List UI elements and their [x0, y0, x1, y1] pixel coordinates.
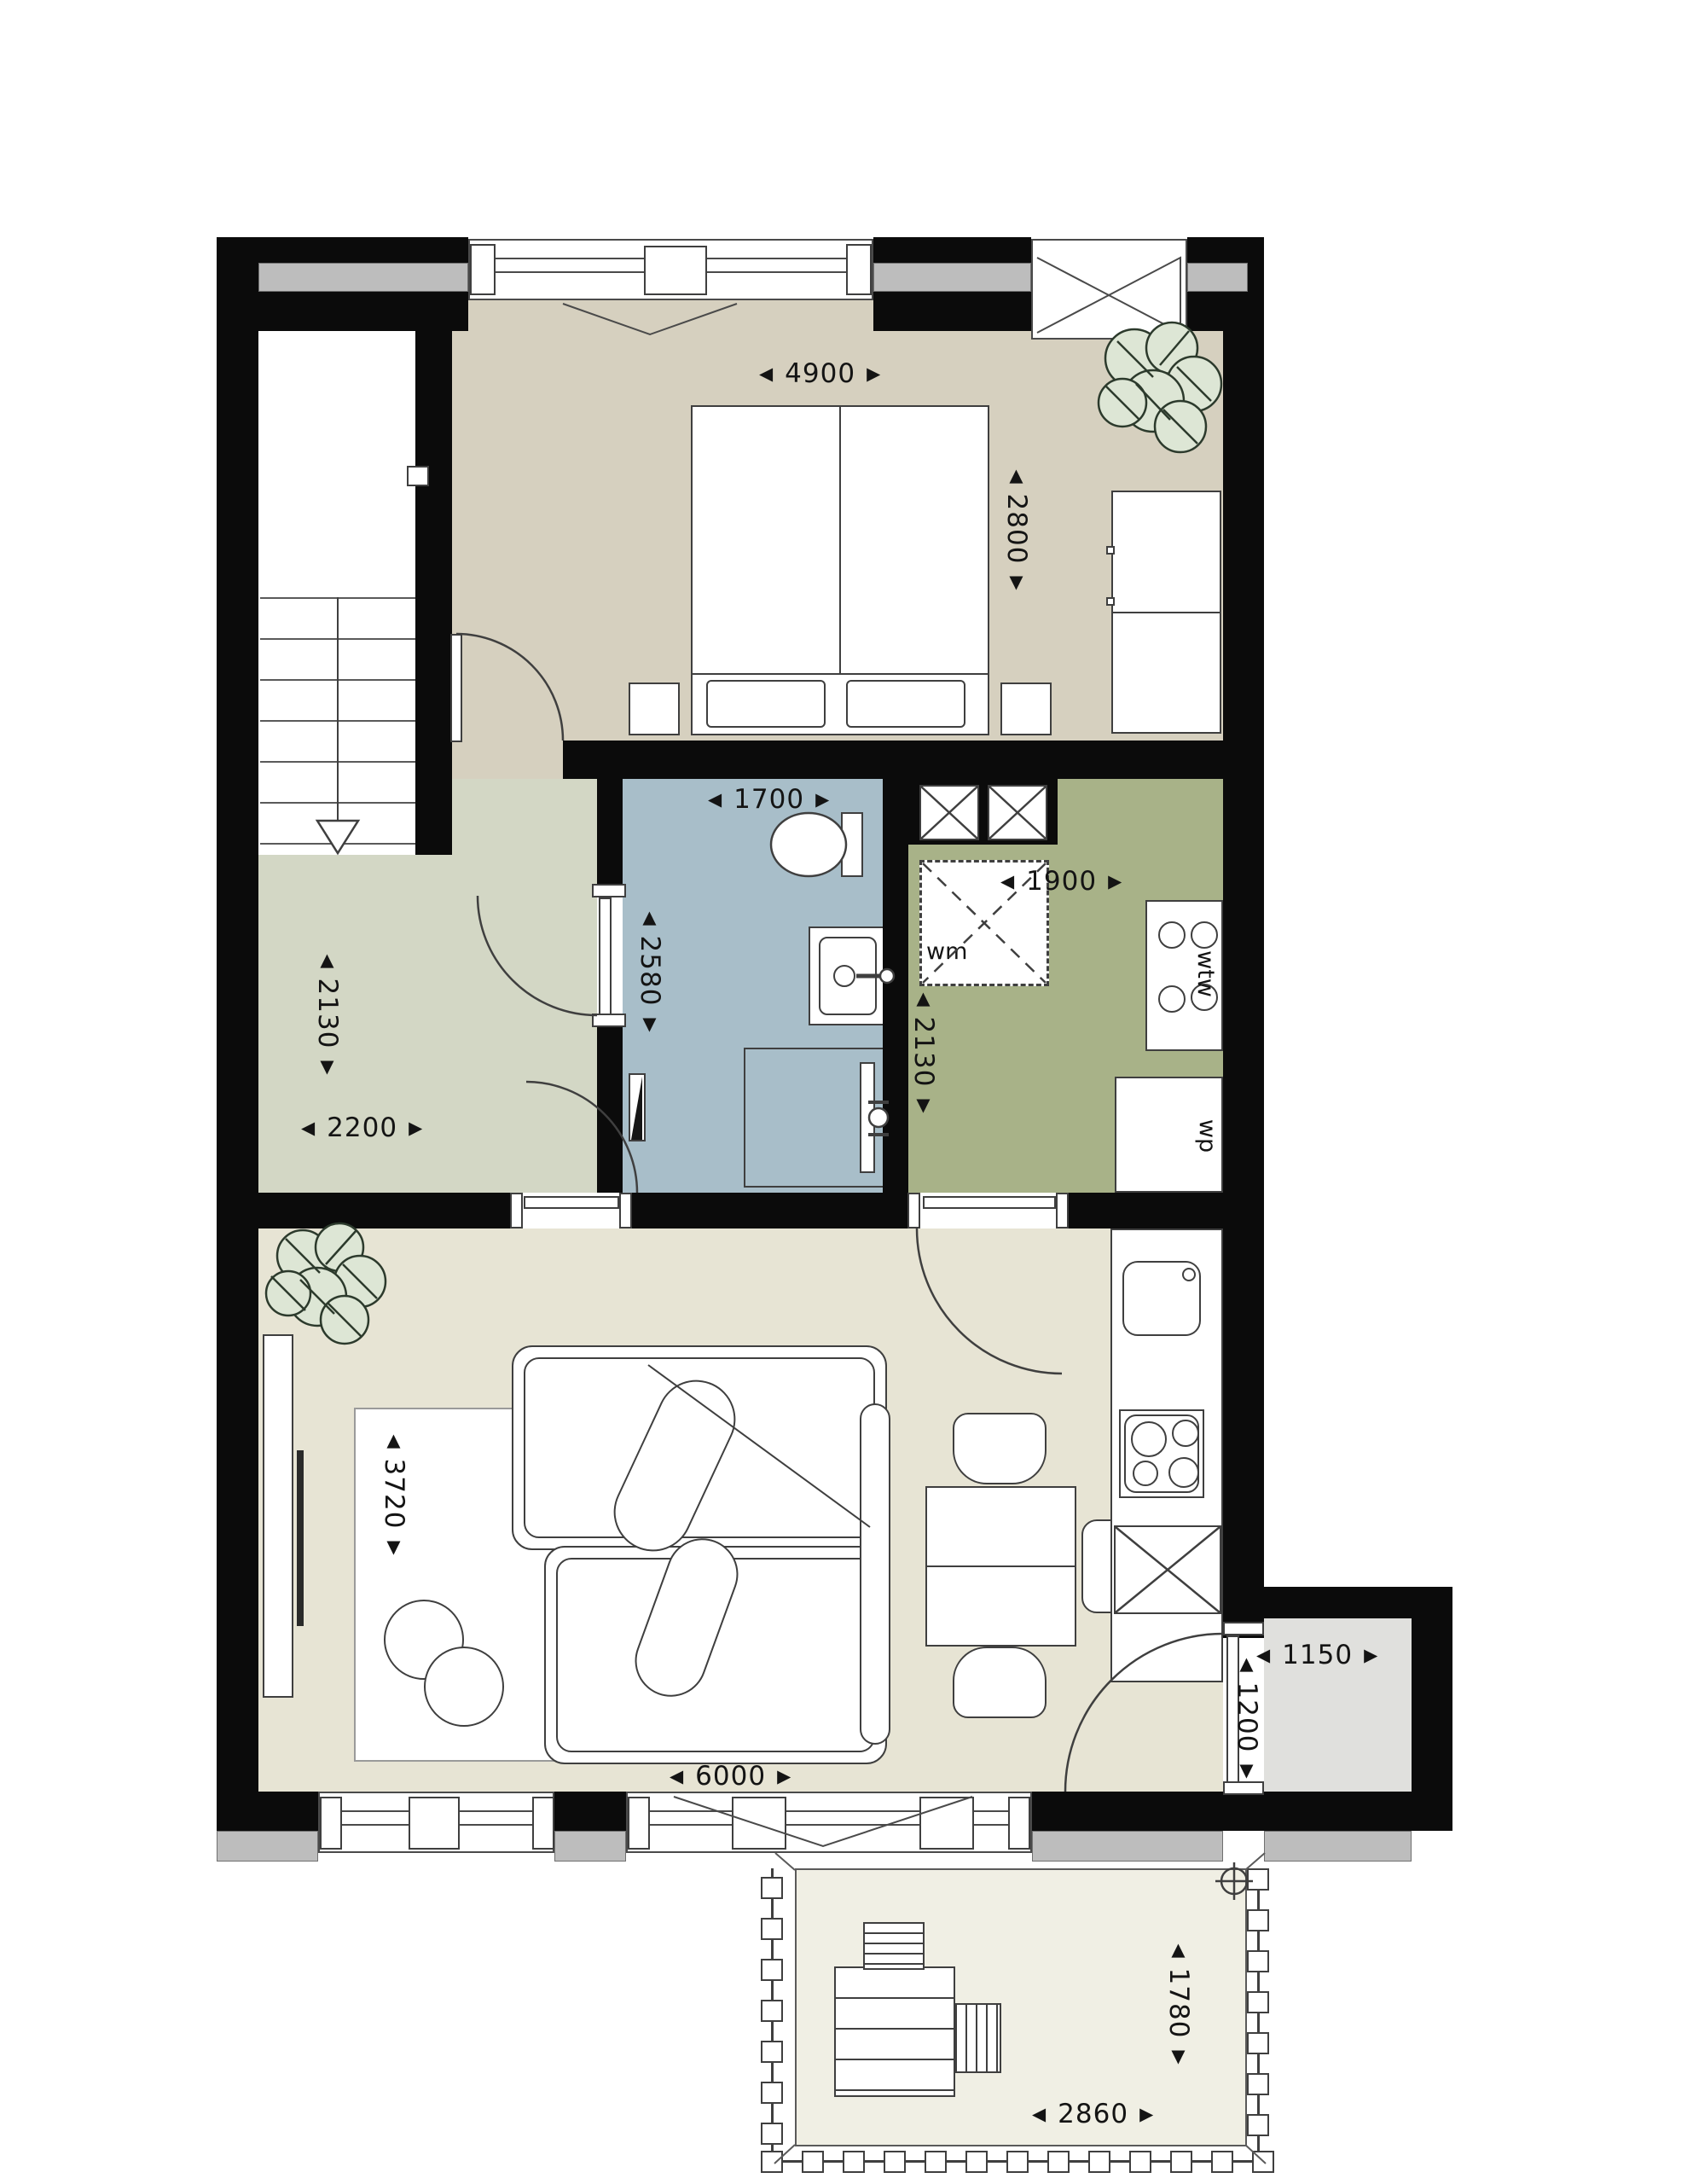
window-sill — [217, 1831, 318, 1862]
door-frame — [592, 884, 626, 897]
window-sill — [1264, 1831, 1412, 1862]
door-frame — [619, 1193, 632, 1228]
fence-post — [1247, 2032, 1269, 2054]
fence-post — [761, 1918, 783, 1940]
arrow-right-icon: ▶ — [815, 791, 830, 809]
dim-value: 2200 — [327, 1112, 397, 1143]
fence-post — [1088, 2151, 1110, 2173]
window-mullion — [1008, 1797, 1030, 1850]
wall-stair — [415, 329, 452, 855]
bed-pillow — [706, 680, 826, 728]
fence-post — [761, 2151, 783, 2173]
terrace-table — [834, 1966, 955, 2097]
arrow-down-icon: ▼ — [320, 1058, 334, 1076]
wall-top-inner-b — [873, 292, 1031, 331]
dim-hall-width: ◀ 2200 ▶ — [301, 1112, 423, 1143]
tv-cabinet — [263, 1334, 293, 1698]
arrow-down-icon: ▼ — [1009, 573, 1023, 591]
arrow-right-icon: ▶ — [867, 365, 881, 383]
arrow-down-icon: ▼ — [1239, 1762, 1254, 1780]
pouf — [424, 1647, 504, 1727]
living-terrace-door — [626, 1792, 1032, 1853]
radiator — [629, 1073, 646, 1141]
utility-floor-upper — [1058, 779, 1223, 845]
fence-post — [1047, 2151, 1070, 2173]
wtw-duct — [1158, 985, 1186, 1013]
fence-post — [761, 1959, 783, 1981]
dim-bathroom-depth: ▲ 2580 ▼ — [633, 909, 667, 1033]
arrow-right-icon: ▶ — [1139, 2106, 1154, 2123]
wall-bath-living — [623, 1193, 917, 1228]
door-frame — [1056, 1193, 1069, 1228]
wall-left — [217, 237, 258, 1831]
toilet-tank — [841, 812, 863, 877]
fence-post — [1247, 1909, 1269, 1931]
wall-top-a — [217, 237, 468, 263]
window-mullion — [732, 1797, 786, 1850]
dim-value: 1780 — [1163, 1968, 1194, 2039]
kitchen-cabinet-x — [1114, 1525, 1221, 1614]
wall-right — [1223, 237, 1264, 1638]
stove-burner — [1168, 1457, 1199, 1488]
bed-pillow — [846, 680, 965, 728]
door-frame — [1223, 1622, 1264, 1635]
wall-bottom-b — [554, 1792, 626, 1831]
fence-post — [1247, 2073, 1269, 2095]
arrow-left-icon: ◀ — [301, 1119, 316, 1137]
dim-value: 2130 — [908, 1017, 939, 1088]
dining-table-seam — [927, 1565, 1075, 1567]
arrow-up-icon: ▲ — [916, 990, 931, 1008]
terrace-chair — [955, 2003, 1001, 2073]
shower-tray — [744, 1048, 904, 1188]
door-frame — [907, 1193, 920, 1228]
arrow-down-icon: ▼ — [642, 1015, 657, 1033]
fence-post — [965, 2151, 988, 2173]
dim-terrace-depth: ▲ 1780 ▼ — [1162, 1941, 1196, 2065]
shaft-box — [988, 785, 1047, 840]
arrow-left-icon: ◀ — [670, 1768, 684, 1786]
window-mullion — [409, 1797, 460, 1850]
fence-post — [761, 2082, 783, 2104]
fence-post — [1247, 1868, 1269, 1891]
dim-value: 1700 — [733, 784, 804, 815]
dim-living-width: ◀ 6000 ▶ — [670, 1761, 791, 1792]
window-mullion — [846, 244, 872, 295]
bedroom-door — [450, 634, 462, 742]
dim-value: 2860 — [1058, 2099, 1128, 2129]
fence-post — [761, 1877, 783, 1899]
wall-hall-bath-upper — [597, 779, 623, 896]
bathroom-door — [599, 897, 612, 1015]
wall-bottom-nook — [1223, 1792, 1452, 1831]
window-mullion — [532, 1797, 554, 1850]
terrace-chair — [863, 1922, 925, 1970]
staircase-centerline — [337, 597, 339, 853]
wp-label: wp — [1194, 1119, 1220, 1153]
wall-bottom-a — [217, 1792, 318, 1831]
window-mullion — [320, 1797, 342, 1850]
fence-post — [1211, 2151, 1233, 2173]
arrow-up-icon: ▲ — [320, 951, 334, 969]
dim-value: 2800 — [1001, 494, 1032, 565]
fence-post — [1247, 1950, 1269, 1972]
fence-post — [1170, 2151, 1192, 2173]
shaft-box — [919, 785, 979, 840]
sofa-armrest — [860, 1403, 890, 1745]
dim-value: 4900 — [785, 358, 855, 389]
arrow-down-icon: ▼ — [916, 1096, 931, 1114]
dim-nook-width: ◀ 1150 ▶ — [1256, 1640, 1378, 1670]
window-sill — [554, 1831, 626, 1862]
shower-drain-strip — [860, 1062, 875, 1173]
bedroom-window-2 — [1031, 239, 1187, 340]
wtw-duct — [1191, 921, 1218, 949]
hallway-living-door — [524, 1196, 619, 1209]
wardrobe-handle — [1106, 597, 1115, 606]
wall-bedroom-bottom — [563, 741, 1223, 779]
fence-post — [761, 2123, 783, 2145]
fence-post — [1006, 2151, 1029, 2173]
arrow-left-icon: ◀ — [759, 365, 774, 383]
arrow-right-icon: ▶ — [1364, 1647, 1378, 1664]
arrow-left-icon: ◀ — [1032, 2106, 1047, 2123]
window-mullion — [470, 244, 496, 295]
arrow-up-icon: ▲ — [1171, 1941, 1186, 1959]
fence-post — [1252, 2151, 1274, 2173]
dim-value: 6000 — [695, 1761, 766, 1792]
floor-plan: ◀ 4900 ▶ ▲ 2800 ▼ ◀ 1700 ▶ ▲ 2580 ▼ ◀ 19… — [0, 0, 1693, 2184]
dim-hall-depth: ▲ 2130 ▼ — [310, 951, 345, 1076]
dim-nook-depth: ▲ 1200 ▼ — [1230, 1655, 1264, 1780]
dim-utility-width: ◀ 1900 ▶ — [1000, 866, 1122, 897]
window-sill — [1187, 263, 1248, 292]
fence-post — [1247, 2114, 1269, 2136]
tv — [297, 1450, 304, 1626]
wtw-duct — [1158, 921, 1186, 949]
washing-machine-label: wm — [926, 938, 967, 965]
living-window — [318, 1792, 554, 1853]
wardrobe-handle — [1106, 546, 1115, 555]
wall-bath-utility — [883, 779, 908, 1193]
dim-bathroom-width: ◀ 1700 ▶ — [708, 784, 830, 815]
arrow-right-icon: ▶ — [409, 1119, 423, 1137]
dim-bedroom-width: ◀ 4900 ▶ — [759, 358, 881, 389]
dim-bedroom-depth: ▲ 2800 ▼ — [1000, 467, 1034, 591]
arrow-down-icon: ▼ — [386, 1538, 401, 1556]
arrow-right-icon: ▶ — [1108, 873, 1122, 891]
arrow-up-icon: ▲ — [386, 1432, 401, 1449]
door-frame — [592, 1014, 626, 1027]
door-frame — [1223, 1781, 1264, 1795]
nightstand — [629, 682, 680, 735]
fence-post — [761, 2041, 783, 2063]
dim-utility-depth: ▲ 2130 ▼ — [907, 990, 941, 1114]
washbasin-drain — [833, 965, 855, 987]
stove-burner — [1131, 1421, 1167, 1457]
dim-value: 1900 — [1026, 866, 1097, 897]
wall-bottom-c — [1032, 1792, 1223, 1831]
wall-utility-living — [1062, 1193, 1223, 1228]
dim-value: 2130 — [312, 979, 343, 1049]
fence-post — [1247, 1991, 1269, 2013]
stove-burner — [1172, 1420, 1199, 1447]
wardrobe-divider — [1113, 612, 1220, 613]
fence-post — [802, 2151, 824, 2173]
window-sill — [873, 263, 1031, 292]
door-frame — [510, 1193, 523, 1228]
bedroom-door-zone — [452, 741, 563, 779]
dining-chair — [953, 1413, 1047, 1484]
wall-top-b — [873, 237, 1031, 263]
wtw-label: wtw — [1192, 950, 1219, 997]
arrow-left-icon: ◀ — [1000, 873, 1015, 891]
window-sill — [258, 263, 468, 292]
window-mullion — [628, 1797, 650, 1850]
dim-value: 2580 — [635, 936, 665, 1007]
arrow-down-icon: ▼ — [1171, 2047, 1186, 2065]
arrow-up-icon: ▲ — [1239, 1655, 1254, 1673]
kitchen-tap — [1182, 1268, 1196, 1281]
dim-terrace-width: ◀ 2860 ▶ — [1032, 2099, 1154, 2129]
dim-value: 1150 — [1282, 1640, 1353, 1670]
wall-hall-bath-lower — [597, 1015, 623, 1193]
arrow-right-icon: ▶ — [777, 1768, 791, 1786]
wall-top-inner-a — [217, 292, 468, 331]
fence-post — [884, 2151, 906, 2173]
dim-living-depth: ▲ 3720 ▼ — [377, 1432, 411, 1556]
dim-value: 1200 — [1232, 1682, 1262, 1753]
dining-chair — [953, 1647, 1047, 1718]
nightstand — [1000, 682, 1052, 735]
arrow-left-icon: ◀ — [708, 791, 722, 809]
window-mullion — [919, 1797, 974, 1850]
fence-post — [761, 2000, 783, 2022]
wall-hall-living — [258, 1193, 512, 1228]
arrow-up-icon: ▲ — [1009, 467, 1023, 485]
dim-value: 3720 — [379, 1459, 409, 1530]
stair-wall-hatch — [407, 466, 429, 486]
window-mullion — [644, 246, 707, 295]
bed-headboard-line — [693, 673, 988, 675]
window-sill — [1032, 1831, 1223, 1862]
fence-post — [843, 2151, 865, 2173]
fence-post — [1129, 2151, 1151, 2173]
stove-burner — [1133, 1461, 1158, 1486]
fence-post — [925, 2151, 947, 2173]
bed-centerline — [839, 407, 841, 673]
bedroom-window — [468, 239, 873, 300]
utility-door — [923, 1196, 1056, 1209]
arrow-up-icon: ▲ — [642, 909, 657, 926]
